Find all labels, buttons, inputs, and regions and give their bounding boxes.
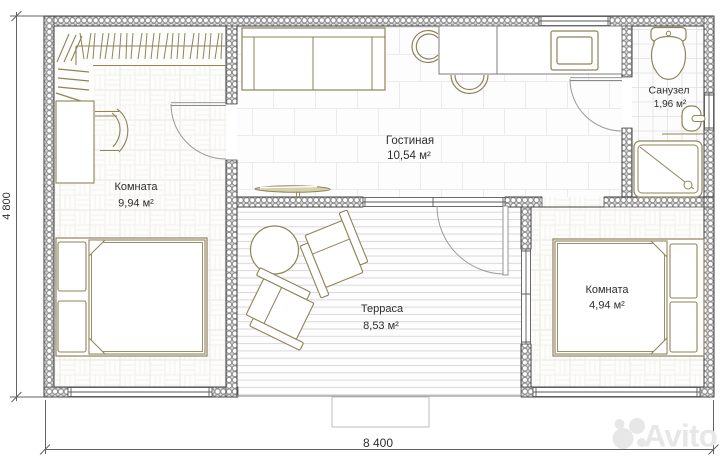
svg-text:1,96 м²: 1,96 м²: [654, 99, 687, 110]
svg-text:Avito: Avito: [644, 418, 718, 454]
svg-text:9,94 м²: 9,94 м²: [118, 198, 154, 210]
svg-text:4,94 м²: 4,94 м²: [589, 300, 625, 312]
svg-text:Гостиная: Гостиная: [386, 135, 434, 147]
svg-text:Терраса: Терраса: [361, 303, 404, 315]
svg-text:Комната: Комната: [585, 284, 629, 296]
svg-text:Санузел: Санузел: [649, 85, 690, 97]
svg-text:8,53 м²: 8,53 м²: [363, 320, 399, 332]
svg-text:4 800: 4 800: [1, 192, 13, 220]
svg-text:8 400: 8 400: [363, 436, 393, 450]
svg-text:Комната: Комната: [114, 181, 158, 193]
svg-text:10,54 м²: 10,54 м²: [387, 150, 431, 162]
